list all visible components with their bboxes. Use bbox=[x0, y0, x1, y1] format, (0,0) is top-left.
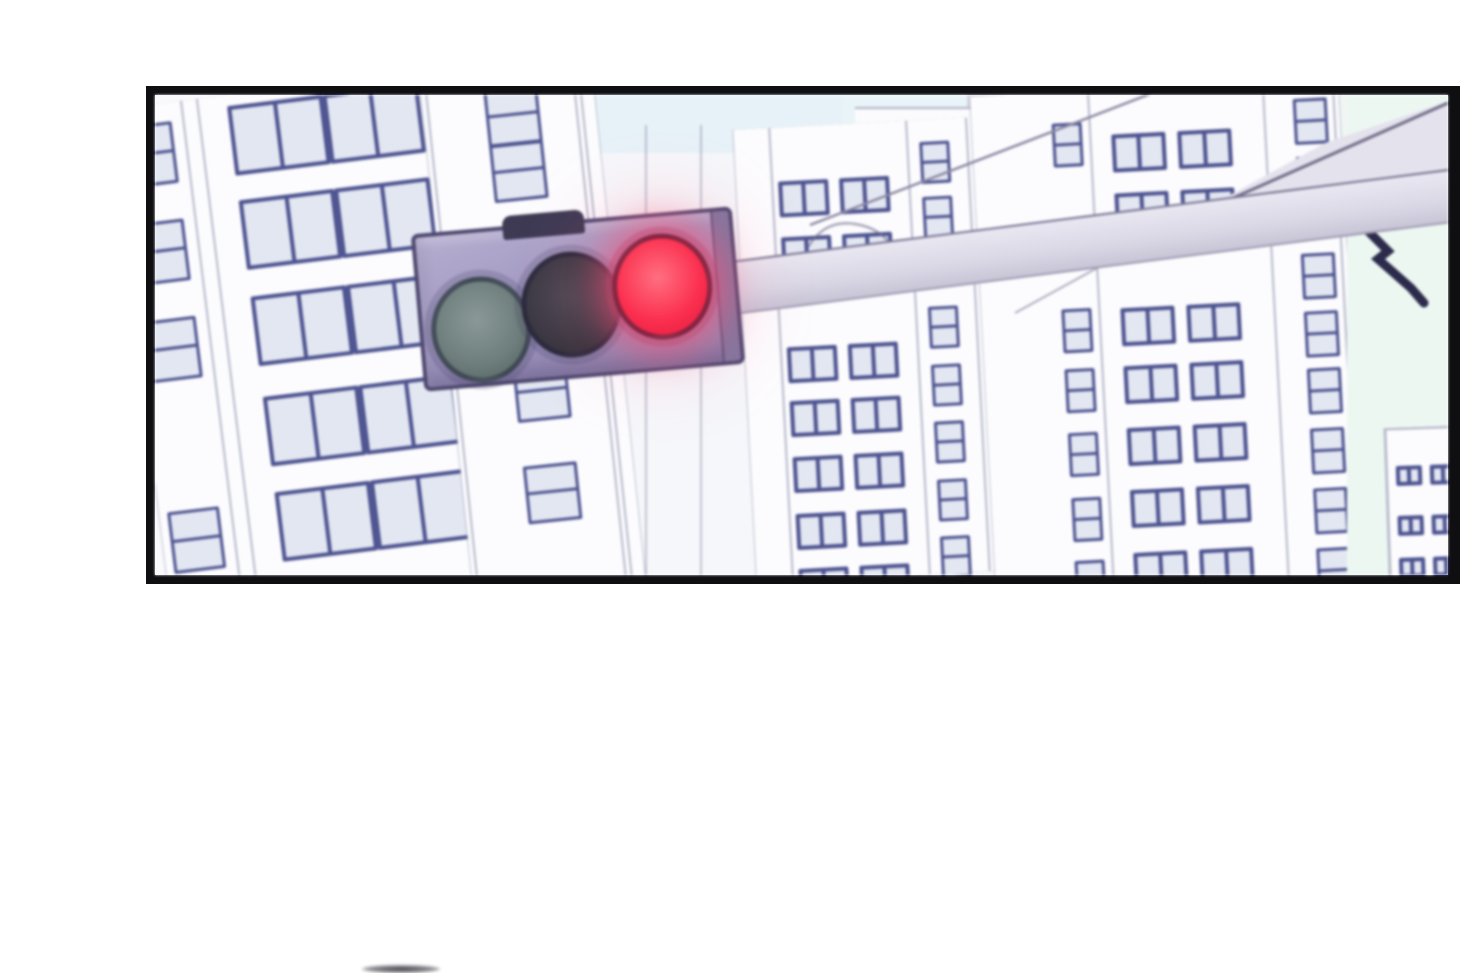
window bbox=[1186, 302, 1242, 343]
window bbox=[931, 363, 963, 407]
window bbox=[250, 285, 354, 366]
window bbox=[853, 451, 905, 490]
window bbox=[1061, 308, 1093, 354]
window bbox=[790, 399, 842, 438]
window bbox=[1433, 556, 1448, 575]
center-tower bbox=[733, 117, 1006, 575]
window bbox=[1052, 122, 1084, 168]
window bbox=[1123, 363, 1179, 404]
window bbox=[778, 179, 830, 218]
window bbox=[155, 121, 179, 189]
window bbox=[239, 189, 343, 270]
window bbox=[263, 385, 367, 466]
facade-line bbox=[1262, 95, 1290, 575]
window bbox=[1196, 484, 1252, 525]
window bbox=[1071, 497, 1103, 543]
window bbox=[1307, 367, 1343, 415]
window bbox=[1397, 515, 1424, 536]
green-light bbox=[427, 272, 536, 386]
window bbox=[155, 218, 191, 286]
window bbox=[1399, 557, 1426, 575]
window bbox=[1064, 368, 1096, 414]
window bbox=[934, 420, 966, 464]
window bbox=[919, 141, 951, 185]
window bbox=[856, 508, 908, 547]
window bbox=[795, 512, 847, 551]
window bbox=[1120, 306, 1176, 347]
window bbox=[1133, 550, 1189, 575]
comic-panel bbox=[146, 86, 1460, 584]
window bbox=[787, 345, 839, 384]
window bbox=[940, 535, 972, 575]
window bbox=[848, 342, 900, 381]
red-light bbox=[608, 229, 717, 343]
window bbox=[167, 506, 226, 574]
window bbox=[274, 481, 378, 562]
window bbox=[1431, 514, 1448, 535]
window bbox=[1193, 422, 1249, 463]
yellow-light bbox=[517, 247, 626, 361]
traffic-light bbox=[411, 206, 746, 391]
window bbox=[793, 455, 845, 494]
window bbox=[227, 95, 331, 176]
window bbox=[1301, 252, 1337, 300]
window bbox=[1313, 487, 1349, 535]
city-scene bbox=[155, 95, 1448, 575]
window bbox=[483, 95, 543, 148]
traffic-light-housing bbox=[411, 206, 746, 391]
window bbox=[798, 566, 850, 575]
window bbox=[489, 140, 549, 203]
window bbox=[1177, 128, 1233, 169]
window bbox=[1199, 547, 1255, 575]
distant-tower bbox=[1384, 426, 1448, 575]
window bbox=[1396, 465, 1423, 486]
window bbox=[523, 461, 583, 524]
window bbox=[1304, 310, 1340, 358]
window bbox=[928, 305, 960, 349]
window bbox=[322, 95, 426, 164]
window bbox=[1189, 360, 1245, 401]
window bbox=[1430, 464, 1448, 485]
right-tower bbox=[970, 95, 1364, 575]
window bbox=[850, 395, 902, 434]
end-cap bbox=[710, 211, 741, 362]
window bbox=[370, 469, 474, 550]
window bbox=[937, 478, 969, 522]
window bbox=[155, 316, 203, 384]
window bbox=[859, 563, 911, 575]
window bbox=[1130, 487, 1186, 528]
window bbox=[1068, 432, 1100, 478]
window bbox=[839, 176, 891, 215]
window bbox=[1111, 132, 1167, 173]
window bbox=[1293, 97, 1329, 145]
facade-line bbox=[905, 121, 931, 574]
window bbox=[1127, 425, 1183, 466]
window bbox=[1310, 427, 1346, 475]
window bbox=[1074, 560, 1106, 575]
